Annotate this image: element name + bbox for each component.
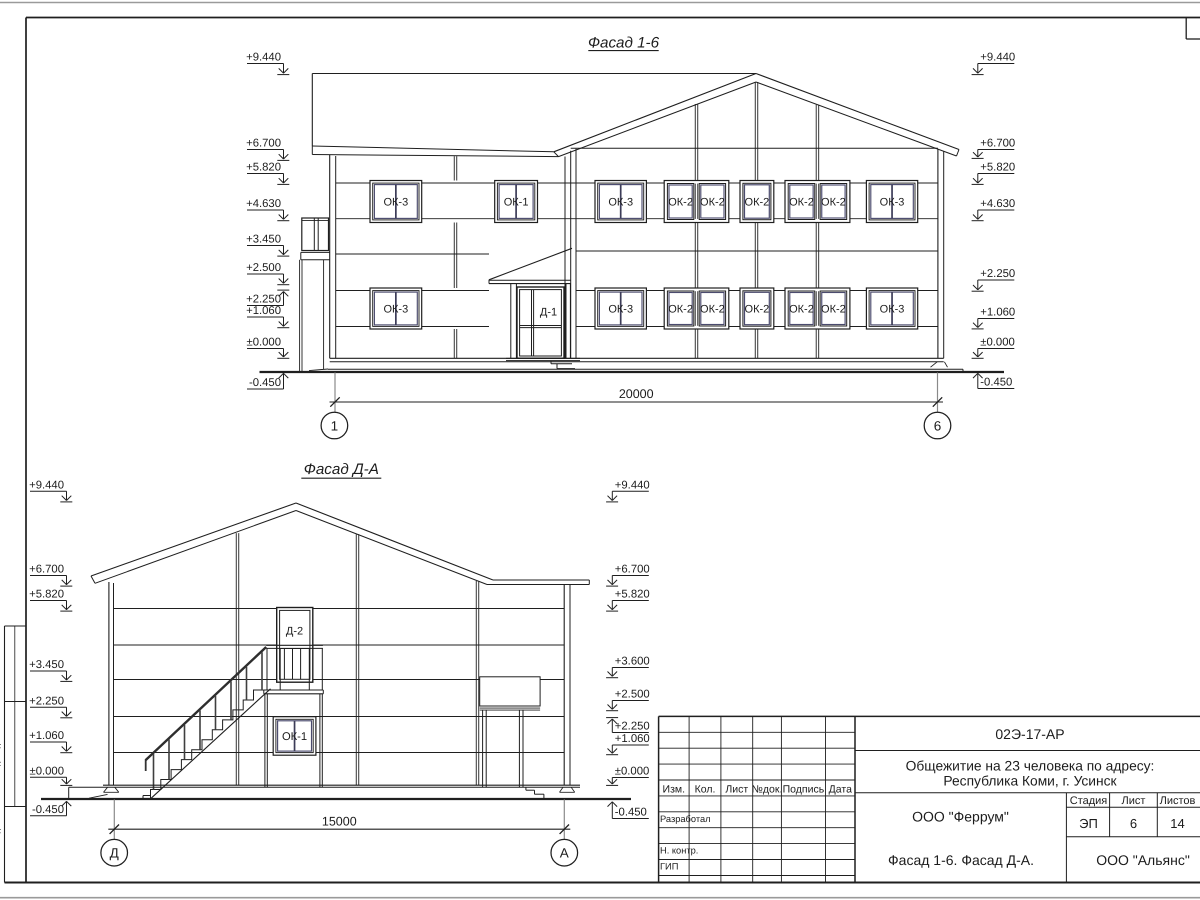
svg-text:±0.000: ±0.000 — [247, 337, 281, 349]
svg-text:ОК-1: ОК-1 — [504, 197, 529, 209]
svg-text:+6.700: +6.700 — [615, 564, 650, 576]
svg-text:Общежитие на 23 человека по ад: Общежитие на 23 человека по адресу: — [906, 759, 1155, 774]
svg-text:ООО "Альянс": ООО "Альянс" — [1096, 852, 1190, 868]
svg-text:+9.440: +9.440 — [980, 52, 1015, 64]
svg-text:Подп. и дата: Подп. и дата — [0, 733, 2, 774]
svg-text:Кол.: Кол. — [695, 784, 716, 796]
svg-text:+6.700: +6.700 — [29, 564, 64, 576]
svg-text:Н. контр.: Н. контр. — [660, 846, 698, 856]
svg-text:15000: 15000 — [322, 814, 357, 828]
svg-text:Взам. инв. №: Взам. инв. № — [0, 642, 2, 686]
svg-text:+5.820: +5.820 — [980, 162, 1015, 174]
svg-text:Фасад 1-6. Фасад Д-А.: Фасад 1-6. Фасад Д-А. — [888, 852, 1034, 868]
svg-text:ОК-2: ОК-2 — [789, 197, 814, 209]
svg-text:1: 1 — [331, 418, 339, 433]
svg-text:+2.250: +2.250 — [246, 294, 281, 306]
svg-text:+2.500: +2.500 — [615, 689, 650, 701]
svg-text:ОК-3: ОК-3 — [880, 304, 905, 316]
svg-text:+2.250: +2.250 — [615, 721, 650, 733]
svg-text:Изм.: Изм. — [663, 784, 686, 796]
svg-text:+5.820: +5.820 — [246, 162, 281, 174]
svg-text:ОК-2: ОК-2 — [700, 197, 725, 209]
svg-text:ОК-2: ОК-2 — [821, 197, 846, 209]
svg-text:Лист: Лист — [725, 784, 748, 796]
svg-text:А: А — [560, 846, 569, 861]
svg-text:14: 14 — [1170, 816, 1184, 831]
svg-text:ОК-2: ОК-2 — [745, 197, 770, 209]
svg-text:ОК-3: ОК-3 — [383, 197, 408, 209]
svg-text:Дата: Дата — [829, 784, 852, 796]
svg-text:№док.: №док. — [752, 784, 783, 796]
svg-text:±0.000: ±0.000 — [615, 766, 649, 778]
svg-text:ОК-2: ОК-2 — [821, 304, 846, 316]
svg-text:+1.060: +1.060 — [980, 307, 1015, 319]
svg-text:+1.060: +1.060 — [29, 730, 64, 742]
svg-text:ОК-3: ОК-3 — [608, 197, 633, 209]
svg-text:+9.440: +9.440 — [246, 52, 281, 64]
svg-text:+4.630: +4.630 — [980, 198, 1015, 210]
svg-text:+2.500: +2.500 — [246, 262, 281, 274]
svg-text:±0.000: ±0.000 — [30, 765, 64, 777]
svg-text:Республика Коми, г. Усинск: Республика Коми, г. Усинск — [943, 773, 1117, 788]
svg-text:ОК-3: ОК-3 — [383, 304, 408, 316]
svg-text:02Э-17-АР: 02Э-17-АР — [995, 726, 1064, 742]
svg-text:+1.060: +1.060 — [615, 733, 650, 745]
svg-text:+6.700: +6.700 — [980, 138, 1015, 150]
svg-text:-0.450: -0.450 — [980, 377, 1012, 389]
svg-text:+9.440: +9.440 — [615, 480, 650, 492]
svg-text:+3.450: +3.450 — [29, 659, 64, 671]
svg-text:-0.450: -0.450 — [249, 377, 281, 389]
svg-text:+3.450: +3.450 — [246, 234, 281, 246]
svg-text:+2.250: +2.250 — [980, 268, 1015, 280]
svg-text:20000: 20000 — [619, 387, 654, 401]
svg-text:ОК-2: ОК-2 — [668, 197, 693, 209]
svg-text:Лист: Лист — [1122, 795, 1146, 807]
svg-text:-0.450: -0.450 — [32, 804, 64, 816]
svg-text:ОК-2: ОК-2 — [700, 304, 725, 316]
svg-text:ООО "Феррум": ООО "Феррум" — [912, 809, 1009, 825]
svg-text:+4.630: +4.630 — [246, 198, 281, 210]
svg-text:ОК-2: ОК-2 — [789, 304, 814, 316]
svg-text:6: 6 — [1130, 816, 1137, 831]
svg-text:Подпись: Подпись — [783, 784, 825, 796]
svg-text:Д-2: Д-2 — [286, 626, 303, 638]
svg-text:Разработал: Разработал — [660, 814, 711, 824]
svg-text:ОК-3: ОК-3 — [880, 197, 905, 209]
svg-text:Стадия: Стадия — [1070, 795, 1108, 807]
svg-text:6: 6 — [934, 418, 942, 433]
svg-text:+1.060: +1.060 — [246, 305, 281, 317]
svg-text:ОК-3: ОК-3 — [608, 304, 633, 316]
svg-text:Д-1: Д-1 — [540, 307, 557, 319]
svg-text:ОК-1: ОК-1 — [282, 731, 307, 743]
svg-text:-0.450: -0.450 — [615, 807, 647, 819]
svg-text:+2.250: +2.250 — [29, 696, 64, 708]
svg-text:ОК-2: ОК-2 — [668, 304, 693, 316]
svg-text:+5.820: +5.820 — [615, 589, 650, 601]
svg-text:Фасад Д-А: Фасад Д-А — [304, 461, 379, 478]
svg-text:ОК-2: ОК-2 — [745, 304, 770, 316]
svg-text:ГИП: ГИП — [660, 862, 678, 872]
svg-text:+9.440: +9.440 — [29, 480, 64, 492]
svg-text:±0.000: ±0.000 — [980, 337, 1014, 349]
svg-text:ЭП: ЭП — [1079, 816, 1098, 831]
svg-text:Д: Д — [110, 846, 119, 861]
svg-text:Инв. № подл.: Инв. № подл. — [0, 823, 2, 867]
svg-text:Фасад 1-6: Фасад 1-6 — [588, 35, 660, 52]
svg-text:+3.600: +3.600 — [615, 656, 650, 668]
svg-text:Листов: Листов — [1160, 795, 1196, 807]
svg-text:+5.820: +5.820 — [29, 589, 64, 601]
svg-text:+6.700: +6.700 — [246, 138, 281, 150]
